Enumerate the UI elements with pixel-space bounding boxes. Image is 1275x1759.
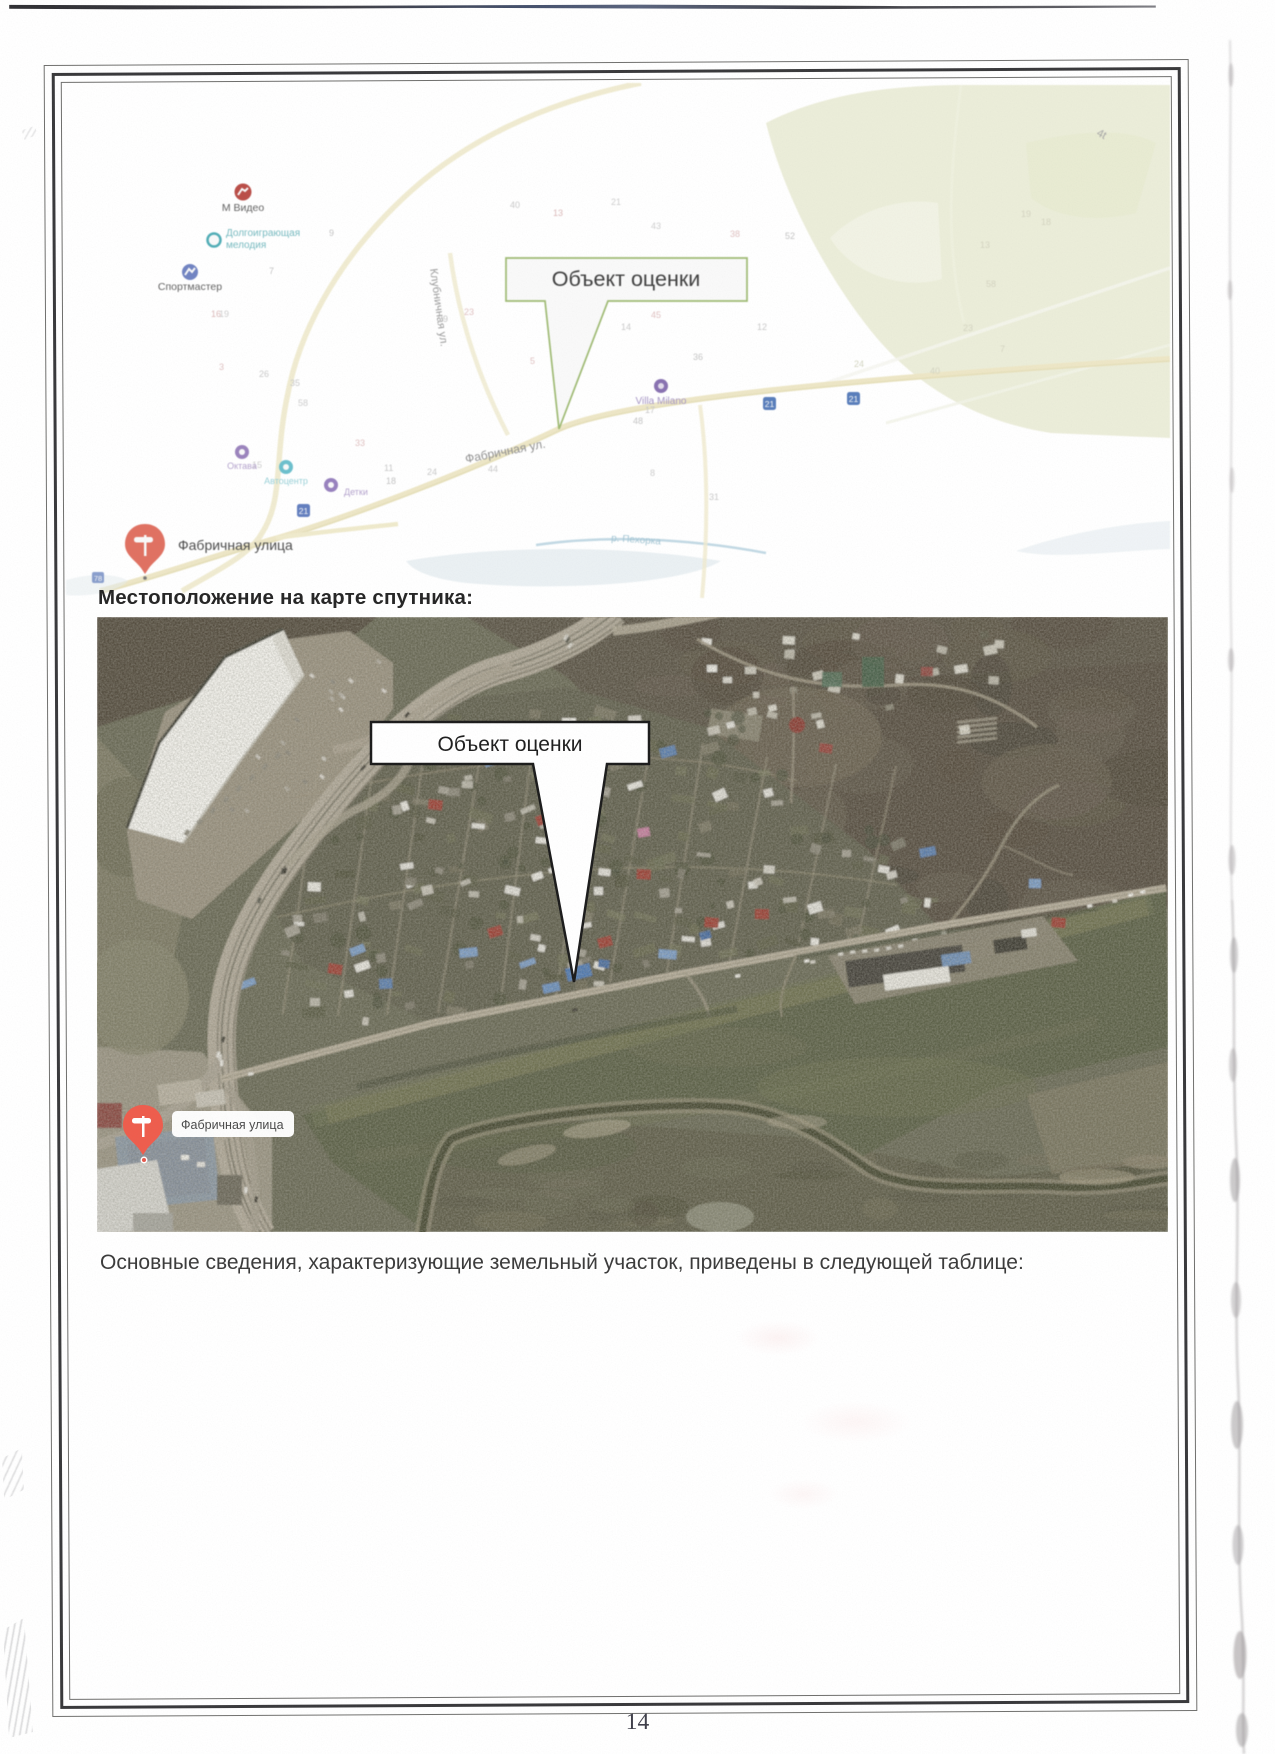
svg-text:45: 45 [651,310,661,320]
svg-text:Долгоиграющая: Долгоиграющая [226,228,300,239]
svg-text:7: 7 [1000,344,1005,354]
svg-text:Фабричная улица: Фабричная улица [181,1118,284,1132]
svg-text:40: 40 [510,200,520,210]
svg-text:3: 3 [219,362,224,372]
svg-text:р. Пехорка: р. Пехорка [611,533,662,547]
svg-text:43: 43 [651,221,661,231]
svg-text:Фабричная улица: Фабричная улица [178,537,293,553]
svg-text:18: 18 [386,476,396,486]
svg-text:13: 13 [553,208,563,218]
svg-text:М Видео: М Видео [222,202,264,214]
svg-text:19: 19 [219,309,229,319]
svg-text:11: 11 [384,463,393,473]
svg-text:58: 58 [986,279,996,289]
svg-text:5: 5 [530,356,535,366]
svg-text:24: 24 [427,467,437,477]
svg-text:19: 19 [1021,209,1031,219]
svg-text:18: 18 [1041,217,1051,227]
svg-text:7: 7 [269,266,274,276]
svg-text:78: 78 [94,574,102,583]
svg-text:Клубничная ул.: Клубничная ул. [427,268,450,348]
svg-text:24: 24 [854,359,864,369]
svg-text:23: 23 [464,307,474,317]
svg-text:38: 38 [730,229,740,239]
svg-text:23: 23 [963,323,973,333]
svg-text:21: 21 [849,394,859,404]
svg-text:29: 29 [438,314,448,324]
svg-text:21: 21 [765,399,775,409]
svg-text:33: 33 [355,438,365,448]
svg-text:21: 21 [611,197,621,207]
svg-text:9: 9 [329,228,334,238]
svg-text:35: 35 [290,378,300,388]
svg-text:12: 12 [757,322,767,332]
svg-text:Объект оценки: Объект оценки [552,267,700,291]
svg-text:мелодия: мелодия [226,240,266,251]
svg-text:Объект оценки: Объект оценки [437,733,582,756]
svg-text:Автоцентр: Автоцентр [264,476,308,486]
svg-text:Фабричная ул.: Фабричная ул. [464,437,547,466]
svg-text:21: 21 [299,506,309,516]
svg-text:58: 58 [298,398,308,408]
svg-text:Октава: Октава [227,461,257,471]
svg-text:36: 36 [693,352,703,362]
svg-text:48: 48 [633,416,643,426]
svg-text:Спортмастер: Спортмастер [158,281,222,293]
svg-text:13: 13 [980,240,990,250]
svg-text:44: 44 [488,464,498,474]
svg-text:31: 31 [709,492,719,502]
svg-text:8: 8 [650,468,655,478]
svg-text:40: 40 [930,366,940,376]
svg-text:26: 26 [259,369,269,379]
svg-text:52: 52 [785,231,795,241]
svg-text:14: 14 [621,322,631,332]
svg-text:Детки: Детки [344,487,368,497]
svg-text:Villa Milano: Villa Milano [636,396,687,407]
